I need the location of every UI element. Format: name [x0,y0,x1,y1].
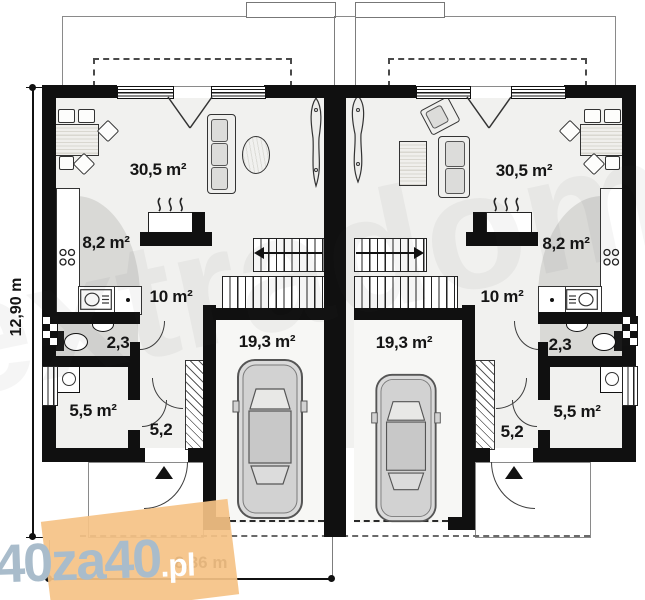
fireplace-wall-left [140,232,212,246]
window-living-right-1 [416,86,471,99]
bath-door-stub-right [538,342,548,356]
garage-top-wall-right [354,308,475,320]
stove-icon-left [57,246,77,268]
terrace-door-right [466,97,512,131]
dimension-tick [26,87,43,88]
room-label-hall-right: 10 m² [481,287,524,307]
room-label-bath-left: 2,3 [107,333,130,353]
chair [59,156,74,170]
sofa-cushion [211,143,228,166]
kitchen-cabinet-left [114,286,142,315]
room-label-entry-right: 5,2 [501,422,524,442]
room-label-kitchen-right: 8,2 m² [542,234,589,254]
window-bath-right [622,316,638,346]
room-label-living-left: 30,5 m² [130,160,187,180]
window-utility-left [42,366,58,406]
utility-wall-right-b [538,430,550,448]
stairs-arrow-icon-right [414,247,424,259]
dimension-label-depth: 12,90 m [8,267,26,347]
dining-table-right [580,124,624,156]
fireplace-flames-icon-right [490,197,524,212]
terrace-door-left [167,97,213,131]
watermark-logo: 40za40.pl [0,527,196,596]
stairs-direction-line-left [262,252,322,254]
room-label-utility-left: 5,5 m² [69,401,116,421]
watermark-text-suffix: .pl [160,547,196,584]
utility-wall-left-b [128,430,140,448]
room-label-kitchen-left: 8,2 m² [82,233,129,253]
car-icon-left [236,356,304,522]
watermark-text-part2: za40 [50,529,161,593]
party-wall-projection-line [334,16,335,85]
cabinet-dot [550,298,554,302]
chair [604,109,621,123]
watermark-text-part1: 40 [0,533,52,595]
entrance-arrow-icon-right [505,466,523,479]
kitchen-bath-wall-right [538,312,622,324]
dining-table-left [55,124,99,156]
entry-wall-stub-right [475,448,490,462]
party-wall-projection-line [355,16,356,85]
plant-icon-left [306,96,326,188]
fireplace-left [148,212,194,234]
floor-plan: 30,5 m² 8,2 m² 10 m² 2,3 5,5 m² 5,2 19,3… [0,0,645,600]
car-icon-right [372,372,440,524]
fireplace-flames-icon-left [154,197,188,212]
armchair-cushion [425,104,450,129]
bath-door-stub-left [130,342,140,356]
chair [584,109,601,123]
window-living-left-1 [117,86,174,99]
sofa-right [438,136,470,198]
chair [605,156,620,170]
chimney-left [246,2,336,18]
bottom-wall-left [42,448,145,462]
room-label-living-right: 30,5 m² [496,161,553,181]
washer-icon-right [600,366,623,393]
bottom-wall-right [533,448,636,462]
washer-icon-left [57,366,80,393]
room-label-hall-left: 10 m² [150,287,193,307]
washer-drum [605,372,619,386]
dimension-dot [328,575,335,582]
fireplace-right [486,212,532,234]
window-bath-left [42,316,58,346]
wardrobe-left [185,360,205,450]
stairs-direction-line-right [356,252,416,254]
kitchen-sink-icon-right [566,289,598,310]
garage-door-stub-right [448,517,475,530]
room-label-garage-left: 19,3 m² [239,332,296,352]
plant-icon-right [347,94,369,184]
washer-drum [62,372,76,386]
garage-side-wall-left [203,305,216,530]
toilet-icon-right [592,333,616,351]
sofa-cushion [445,168,465,194]
sofa-cushion [211,119,228,142]
dimension-line-vertical [32,87,34,537]
room-label-garage-right: 19,3 m² [376,333,433,353]
entry-wall-stub-left [188,448,203,462]
sofa-cushion [211,167,228,190]
rug-oval-left [242,136,270,174]
utility-wall-left-a [128,356,140,400]
entrance-arrow-icon-left [155,466,173,479]
room-label-entry-left: 5,2 [150,420,173,440]
wardrobe-right [475,360,495,450]
party-wall [324,85,346,537]
fireplace-wall-right [466,232,538,246]
dimension-extension [332,530,333,578]
stairs-lower-flight-right [354,276,458,310]
garage-top-wall-left [203,308,324,320]
stairs-arrow-icon-left [254,247,264,259]
cabinet-dot [126,298,130,302]
stairs-lower-flight-left [222,276,326,310]
room-label-utility-right: 5,5 m² [553,402,600,422]
utility-wall-right-a [538,356,550,400]
window-utility-right [622,366,638,406]
chair [78,109,95,123]
window-living-right-2 [511,86,566,99]
kitchen-sink-icon-left [80,289,112,310]
room-label-bath-right: 2,3 [549,335,572,355]
fireplace-block-left [192,212,205,232]
toilet-icon-left [64,333,88,351]
stove-icon-right [601,246,621,268]
kitchen-bath-wall-left [56,312,140,324]
terrace-dashed-outline-left [93,58,292,87]
fireplace-block-right [473,212,486,232]
rug-wood-right [399,141,427,186]
garage-side-wall-right [462,305,475,530]
chimney-right [355,2,445,18]
terrace-dashed-outline-right [388,58,587,87]
kitchen-cabinet-right [538,286,566,315]
chair [58,109,75,123]
sofa-cushion [445,141,465,167]
window-living-left-2 [211,86,266,99]
